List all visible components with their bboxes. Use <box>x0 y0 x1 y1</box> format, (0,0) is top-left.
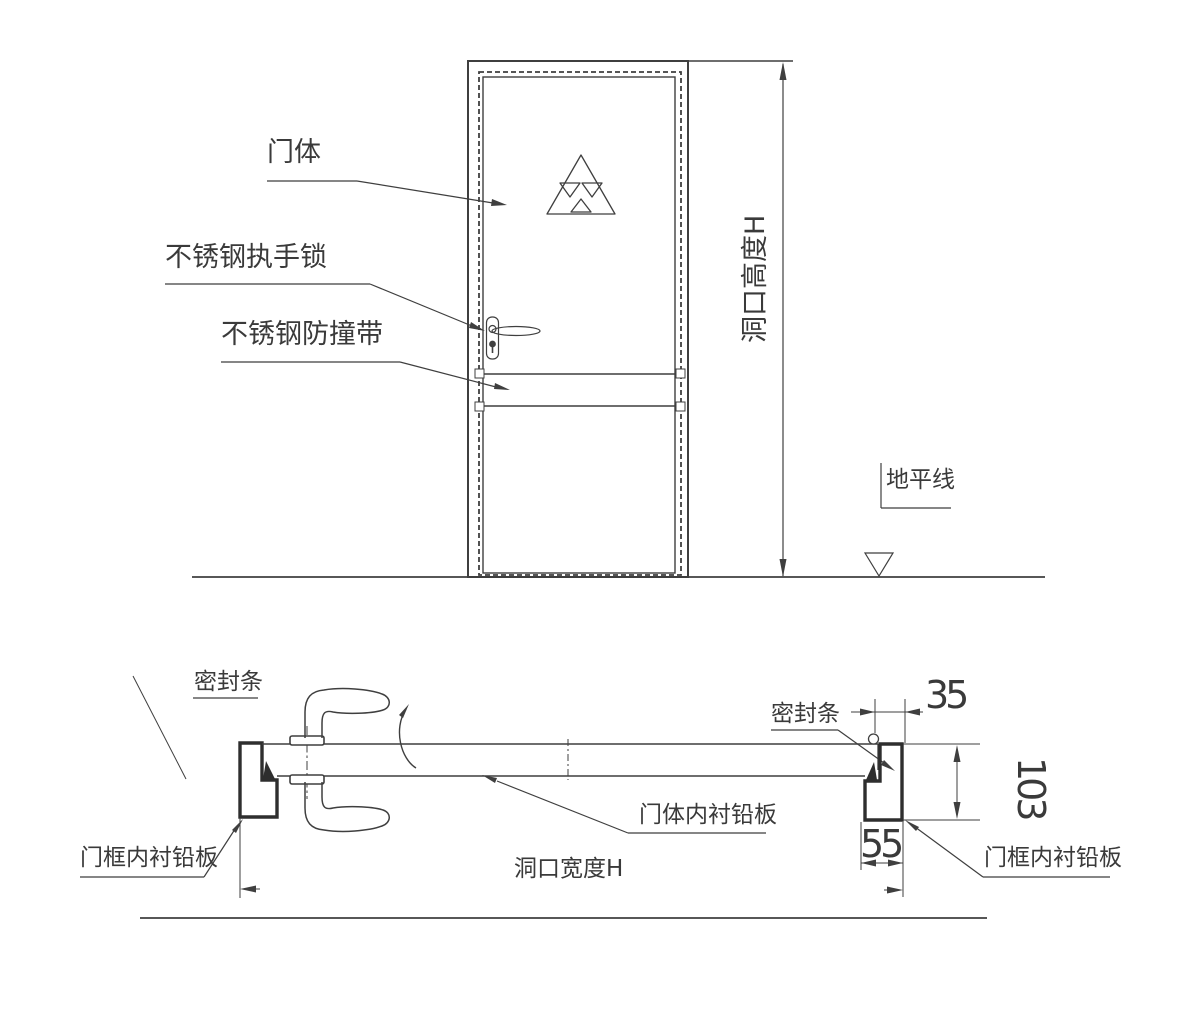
bumper-strip-label: 不锈钢防撞带 <box>221 321 383 349</box>
right-seal-strip <box>866 762 877 780</box>
opening-width-label: 洞口宽度H <box>514 857 623 881</box>
dim-103-text: 103 <box>1010 757 1050 818</box>
bumper-strip <box>475 369 685 411</box>
door-panel-section <box>262 744 878 776</box>
opening-height-label: 洞口高度H <box>742 215 770 343</box>
dim-35-text: 35 <box>925 676 965 716</box>
seal-right-label: 密封条 <box>771 702 840 726</box>
handle-lock <box>487 317 541 359</box>
right-frame-profile <box>865 744 902 820</box>
dimension-103 <box>903 744 980 820</box>
seal-left-label: 密封条 <box>194 670 263 694</box>
frame-lead-lining-right-label: 门框内衬铅板 <box>984 846 1122 870</box>
radiation-symbol-icon <box>547 155 615 214</box>
opening-height-dimension <box>780 62 787 577</box>
handle-lock-label: 不锈钢执手锁 <box>165 244 327 272</box>
door-body-leader <box>267 181 507 206</box>
door-swing-arc <box>399 704 416 768</box>
door-lead-lining-label: 门体内衬铅板 <box>639 803 777 827</box>
lever-handles <box>305 689 389 832</box>
left-seal-strip <box>263 761 275 779</box>
wall-diagonal-line <box>133 676 186 779</box>
door-leaf-inner <box>483 77 675 573</box>
door-body-label: 门体 <box>267 139 321 167</box>
dim-55-text: 55 <box>860 825 900 865</box>
hinge <box>290 726 324 799</box>
frame-lead-lining-left-label: 门框内衬铅板 <box>80 846 218 870</box>
level-symbol-icon <box>865 553 893 576</box>
right-seal-bulb <box>869 734 879 744</box>
dimension-35 <box>851 699 923 743</box>
bumper-strip-leader <box>221 362 510 390</box>
door-lead-lining-dashed <box>479 72 681 575</box>
left-frame-profile <box>240 743 277 817</box>
door-outer-frame <box>468 61 688 577</box>
ground-line-label: 地平线 <box>886 468 955 492</box>
radiation-door-drawing: 门体 不锈钢执手锁 不锈钢防撞带 洞口高度H 地平线 密封条 密封条 门体内衬铅… <box>0 0 1200 1020</box>
